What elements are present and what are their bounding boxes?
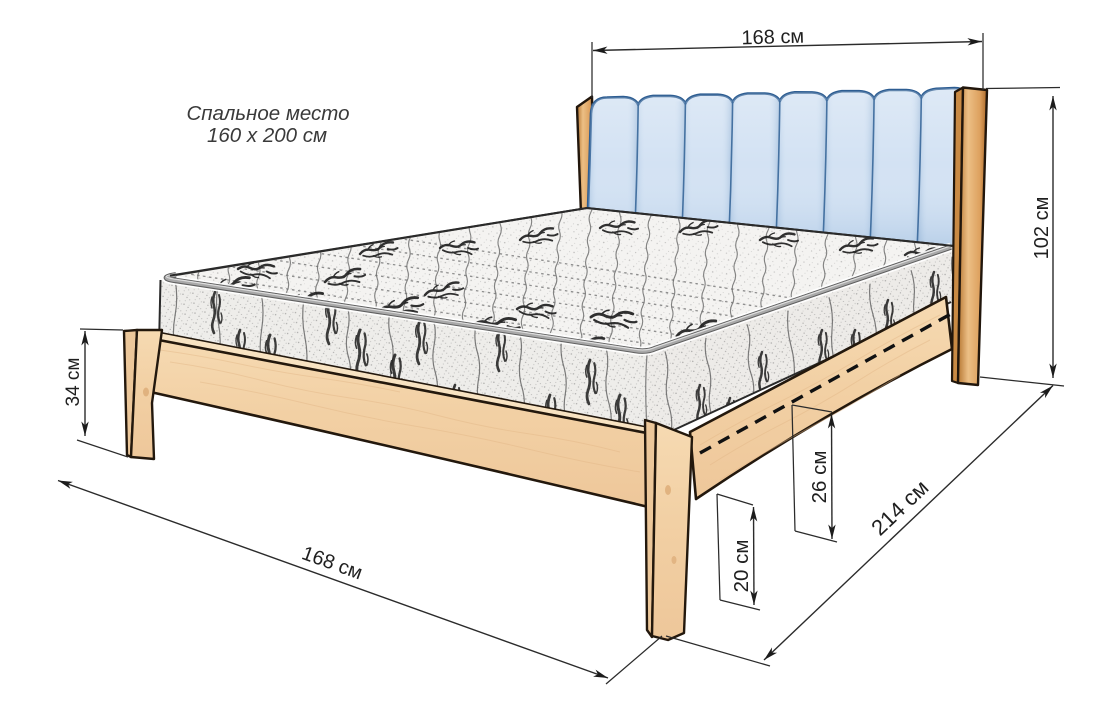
svg-text:34 см: 34 см bbox=[63, 358, 84, 407]
svg-text:26 см: 26 см bbox=[808, 451, 831, 504]
svg-text:Спальное место: Спальное место bbox=[186, 102, 349, 125]
svg-text:160 x 200 см: 160 x 200 см bbox=[207, 124, 327, 147]
svg-text:102 см: 102 см bbox=[1031, 197, 1053, 260]
svg-text:168 см: 168 см bbox=[741, 26, 804, 50]
svg-text:20 см: 20 см bbox=[730, 540, 753, 593]
